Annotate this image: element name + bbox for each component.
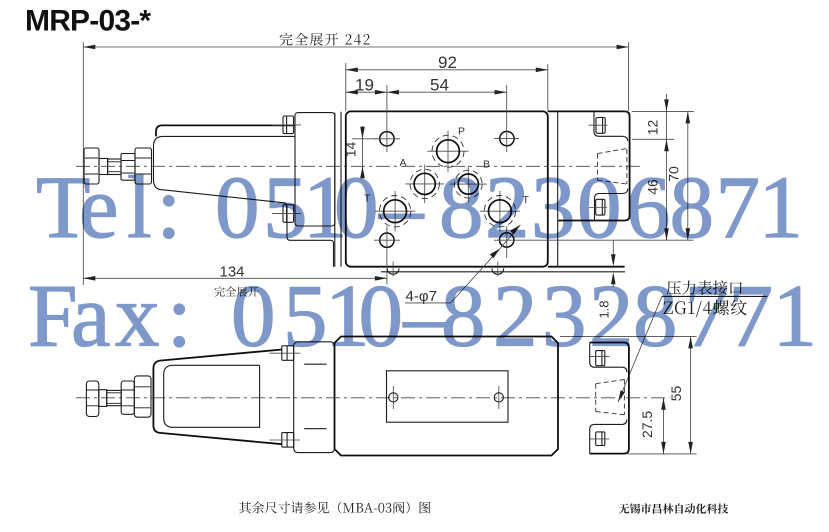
svg-text:14: 14 (343, 142, 359, 158)
svg-text:54: 54 (430, 76, 449, 95)
svg-text:MRP-03-*: MRP-03-* (25, 4, 151, 37)
svg-text:Tel: 0510–82306871: Tel: 0510–82306871 (36, 159, 803, 257)
svg-text:55: 55 (668, 386, 684, 402)
svg-text:12: 12 (645, 120, 661, 136)
svg-text:19: 19 (355, 76, 374, 95)
svg-text:P: P (458, 126, 465, 138)
svg-text:27.5: 27.5 (639, 411, 655, 438)
svg-text:Fax: 0510–82328771: Fax: 0510–82328771 (28, 268, 817, 366)
svg-text:92: 92 (438, 53, 457, 72)
